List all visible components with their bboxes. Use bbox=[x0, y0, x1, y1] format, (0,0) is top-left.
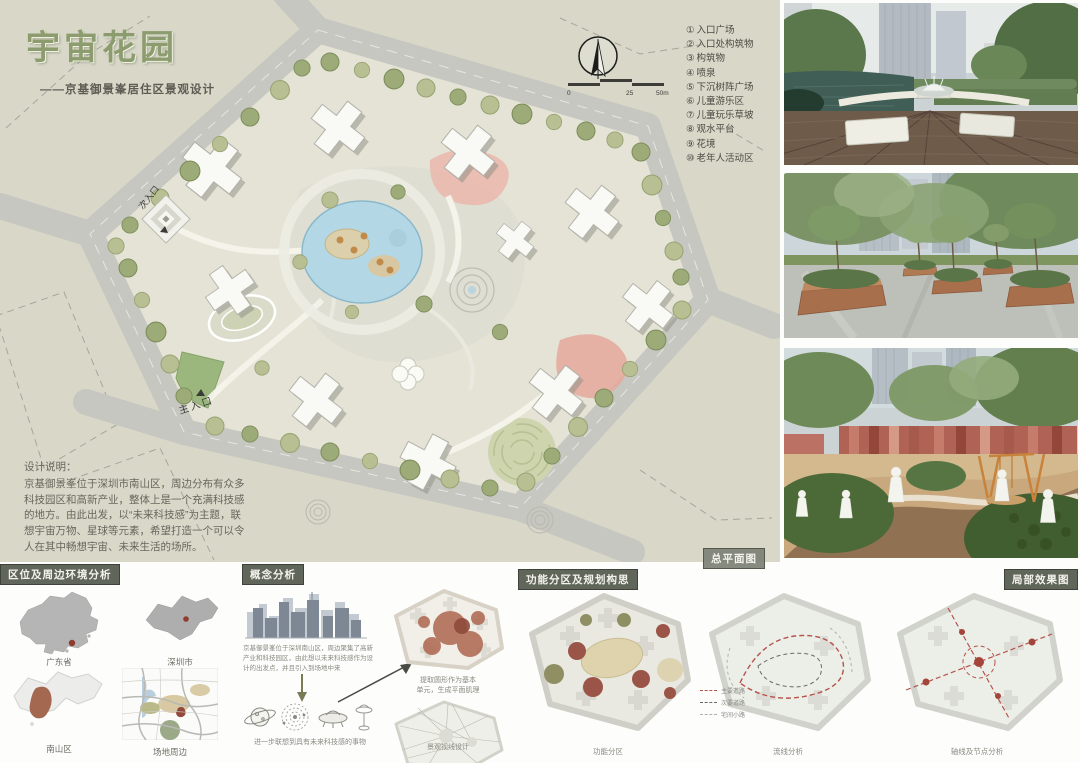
svg-text:25: 25 bbox=[626, 90, 634, 97]
transform-caption-line1: 提取圆形作为基本 bbox=[388, 676, 508, 687]
legend-label: 构筑物 bbox=[697, 53, 726, 64]
axis-nodes-caption: 轴线及节点分析 bbox=[884, 746, 1070, 757]
legend-item: ⑨花境 bbox=[686, 138, 754, 152]
render-photo-fountain-image bbox=[784, 3, 1078, 165]
map-guangdong bbox=[138, 590, 222, 652]
function-zoning-diagram bbox=[520, 588, 696, 740]
legend-item: ②入口处构筑物 bbox=[686, 38, 754, 52]
map-china bbox=[12, 588, 106, 654]
legend-item: ⑧观水平台 bbox=[686, 123, 754, 137]
legend-item: ⑦儿童玩乐草坡 bbox=[686, 109, 754, 123]
design-notes-heading: 设计说明： bbox=[24, 460, 248, 476]
legend-label: 花境 bbox=[697, 139, 716, 150]
legend-item: ①入口广场 bbox=[686, 24, 754, 38]
legend-label: 观水平台 bbox=[697, 124, 735, 135]
legend-label: 喷泉 bbox=[697, 68, 716, 79]
axis-nodes-diagram bbox=[884, 588, 1070, 740]
flow-legend-label: 宅间小路 bbox=[721, 710, 745, 719]
map-nanshan-caption: 南山区 bbox=[8, 743, 110, 755]
legend-num: ⑨ bbox=[686, 139, 695, 150]
svg-text:0: 0 bbox=[567, 90, 571, 97]
legend-item: ⑤下沉树阵广场 bbox=[686, 81, 754, 95]
function-zoning-caption: 功能分区 bbox=[520, 746, 696, 757]
legend-label: 老年人活动区 bbox=[697, 153, 754, 164]
render-photo-playground-image bbox=[784, 348, 1078, 558]
section-detail-ribbon: 局部效果图 bbox=[1004, 569, 1078, 590]
concept-sketch-caption: 进一步联想到具有未来科技感的事物 bbox=[240, 738, 380, 749]
map-shenzhen-nanshan bbox=[8, 666, 110, 738]
space-station-icon bbox=[356, 705, 372, 730]
legend-item: ④喷泉 bbox=[686, 67, 754, 81]
flow-legend-label: 主要道路 bbox=[721, 686, 745, 695]
presentation-board: 次入口 主入口 0 25 50m bbox=[0, 0, 1080, 763]
legend-item: ⑩老年人活动区 bbox=[686, 152, 754, 166]
render-photo-playground bbox=[784, 348, 1078, 558]
legend-num: ④ bbox=[686, 68, 695, 79]
legend-num: ① bbox=[686, 25, 695, 36]
design-notes-body: 京基御景峯位于深圳市南山区，周边分布有众多科技园区和高新产业，整体上是一个充满科… bbox=[24, 477, 248, 556]
path-road-swatch bbox=[700, 714, 717, 715]
render-photo-fountain bbox=[784, 3, 1078, 165]
flow-legend-item: 主要道路 bbox=[700, 686, 745, 695]
sightline-caption: 景观视线设计 bbox=[388, 743, 508, 754]
section-planning-ribbon: 功能分区及规划构思 bbox=[518, 569, 638, 590]
legend-label: 儿童玩乐草坡 bbox=[697, 110, 754, 121]
city-skyline-image bbox=[245, 590, 367, 640]
plan-legend: ①入口广场 ②入口处构筑物 ③构筑物 ④喷泉 ⑤下沉树阵广场 ⑥儿童游乐区 ⑦儿… bbox=[686, 24, 754, 166]
flow-legend-label: 次要道路 bbox=[721, 698, 745, 707]
render-photo-tree-plaza bbox=[784, 173, 1078, 338]
flow-legend-item: 宅间小路 bbox=[700, 710, 745, 719]
section-location-ribbon: 区位及周边环境分析 bbox=[0, 564, 120, 585]
masterplan-ribbon: 总平面图 bbox=[703, 548, 765, 569]
legend-num: ⑥ bbox=[686, 96, 695, 107]
title-block: 宇宙花园 ——京基御景峯居住区景观设计 bbox=[26, 20, 215, 97]
map-site-context-caption: 场地周边 bbox=[122, 746, 218, 758]
legend-num: ③ bbox=[686, 53, 695, 64]
legend-item: ③构筑物 bbox=[686, 52, 754, 66]
transform-caption-line2: 单元，生成平面肌理 bbox=[388, 686, 508, 697]
flow-legend-item: 次要道路 bbox=[700, 698, 745, 707]
map-site-context bbox=[122, 668, 218, 740]
flow-legend: 主要道路 次要道路 宅间小路 bbox=[700, 686, 745, 722]
orbit-icon bbox=[282, 704, 308, 730]
legend-label: 儿童游乐区 bbox=[697, 96, 745, 107]
saturn-icon bbox=[243, 707, 277, 726]
transform-diagram bbox=[388, 586, 508, 672]
analysis-strip: 广东省 深圳市 南山区 bbox=[0, 562, 1080, 763]
primary-road-swatch bbox=[700, 690, 717, 691]
legend-num: ⑩ bbox=[686, 153, 695, 164]
legend-num: ⑦ bbox=[686, 110, 695, 121]
render-photo-tree-plaza-image bbox=[784, 173, 1078, 338]
legend-label: 下沉树阵广场 bbox=[697, 82, 754, 93]
circulation-caption: 流线分析 bbox=[700, 746, 876, 757]
page-subtitle: ——京基御景峯居住区景观设计 bbox=[40, 81, 215, 97]
legend-num: ② bbox=[686, 39, 695, 50]
ufo-icon bbox=[319, 711, 347, 728]
map-china-guangdong-marker bbox=[69, 640, 75, 646]
secondary-road-swatch bbox=[700, 702, 717, 703]
page-title: 宇宙花园 bbox=[26, 20, 215, 69]
design-notes: 设计说明： 京基御景峯位于深圳市南山区，周边分布有众多科技园区和高新产业，整体上… bbox=[24, 460, 248, 556]
map-guangdong-caption: 深圳市 bbox=[138, 656, 222, 668]
map-guangdong-shenzhen-marker bbox=[183, 616, 189, 622]
section-concept-ribbon: 概念分析 bbox=[242, 564, 304, 585]
legend-num: ⑧ bbox=[686, 124, 695, 135]
legend-num: ⑤ bbox=[686, 82, 695, 93]
legend-item: ⑥儿童游乐区 bbox=[686, 95, 754, 109]
legend-label: 入口广场 bbox=[697, 25, 735, 36]
svg-text:50m: 50m bbox=[656, 90, 669, 97]
legend-label: 入口处构筑物 bbox=[697, 39, 754, 50]
